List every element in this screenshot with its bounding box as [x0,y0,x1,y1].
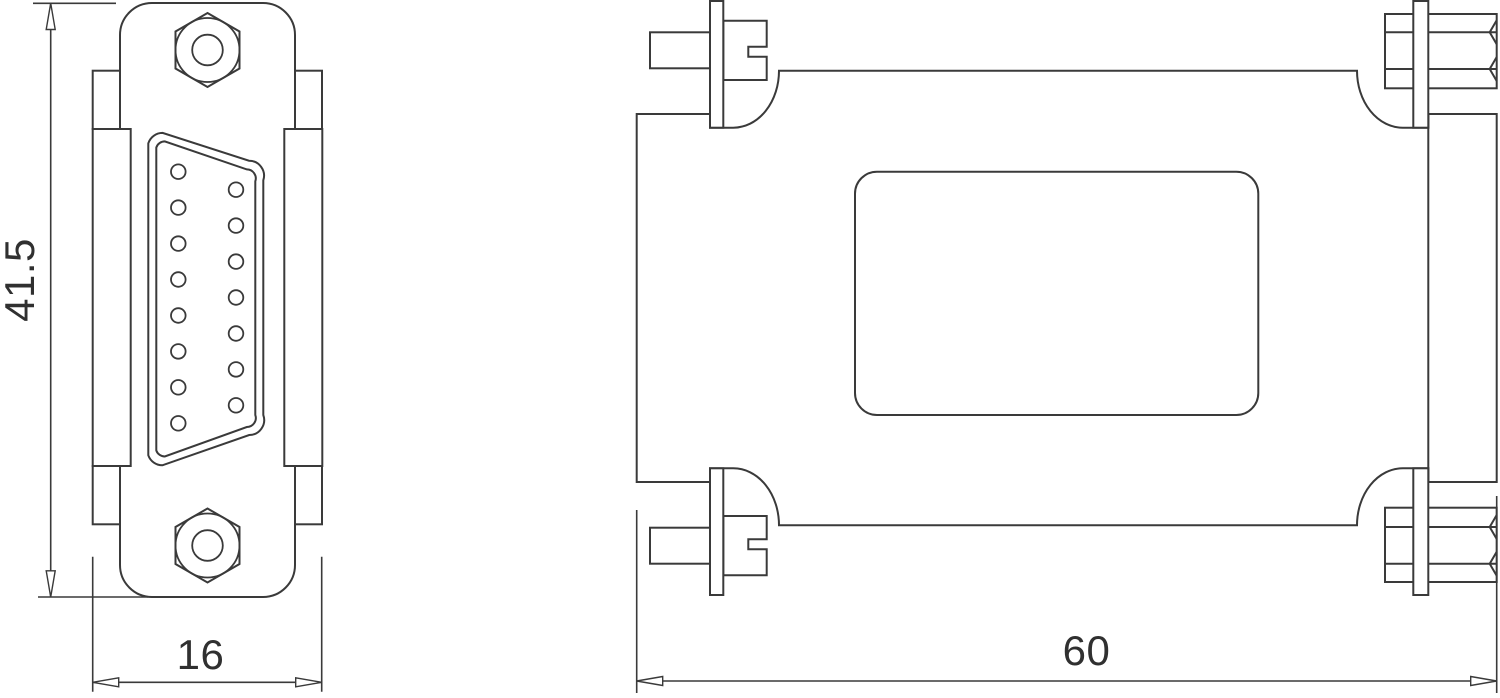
screwlock-body [1385,14,1497,88]
flange-tab-top-right [295,71,322,129]
d-shield-outer [148,133,264,465]
bracket-plate-top-right [1413,1,1428,128]
hex-screwlock-bottom-right [1385,508,1497,582]
hex-screwlock-top-right [1385,14,1497,88]
slotted-screw-top-left [650,21,767,80]
slotted-screw-bottom-left [650,516,767,575]
screw-head-slotted [723,516,766,575]
technical-drawing-page: 41.5 16 60 [0,0,1500,698]
screw-head-slotted [723,21,766,80]
arrowhead-right [296,678,322,687]
arrowhead-down [46,571,55,597]
dimension-text-width: 16 [177,631,225,678]
shell-outline [637,71,1497,526]
side-view [637,1,1497,595]
flange-plate-left [93,129,131,466]
flange-tab-bottom-left [93,466,120,524]
screwlock-body [1385,508,1497,582]
arrowhead-right [1471,677,1497,686]
technical-drawing: 41.5 16 60 [0,0,1500,698]
front-view [93,3,323,597]
dimension-text-height: 41.5 [0,238,43,322]
dimension-text-length: 60 [1063,627,1111,674]
arrowhead-up [46,3,55,29]
screw-shank [650,528,710,564]
flange-tab-top-left [93,71,120,129]
screw-shank [650,32,710,68]
arrowhead-left [93,678,119,687]
arrowhead-left [637,677,663,686]
bracket-plate-top-left [710,1,723,128]
flange-plate-right [284,129,322,466]
bracket-plate-bottom-right [1413,468,1428,595]
bracket-plate-bottom-left [710,468,723,595]
flange-tab-bottom-right [295,466,322,524]
